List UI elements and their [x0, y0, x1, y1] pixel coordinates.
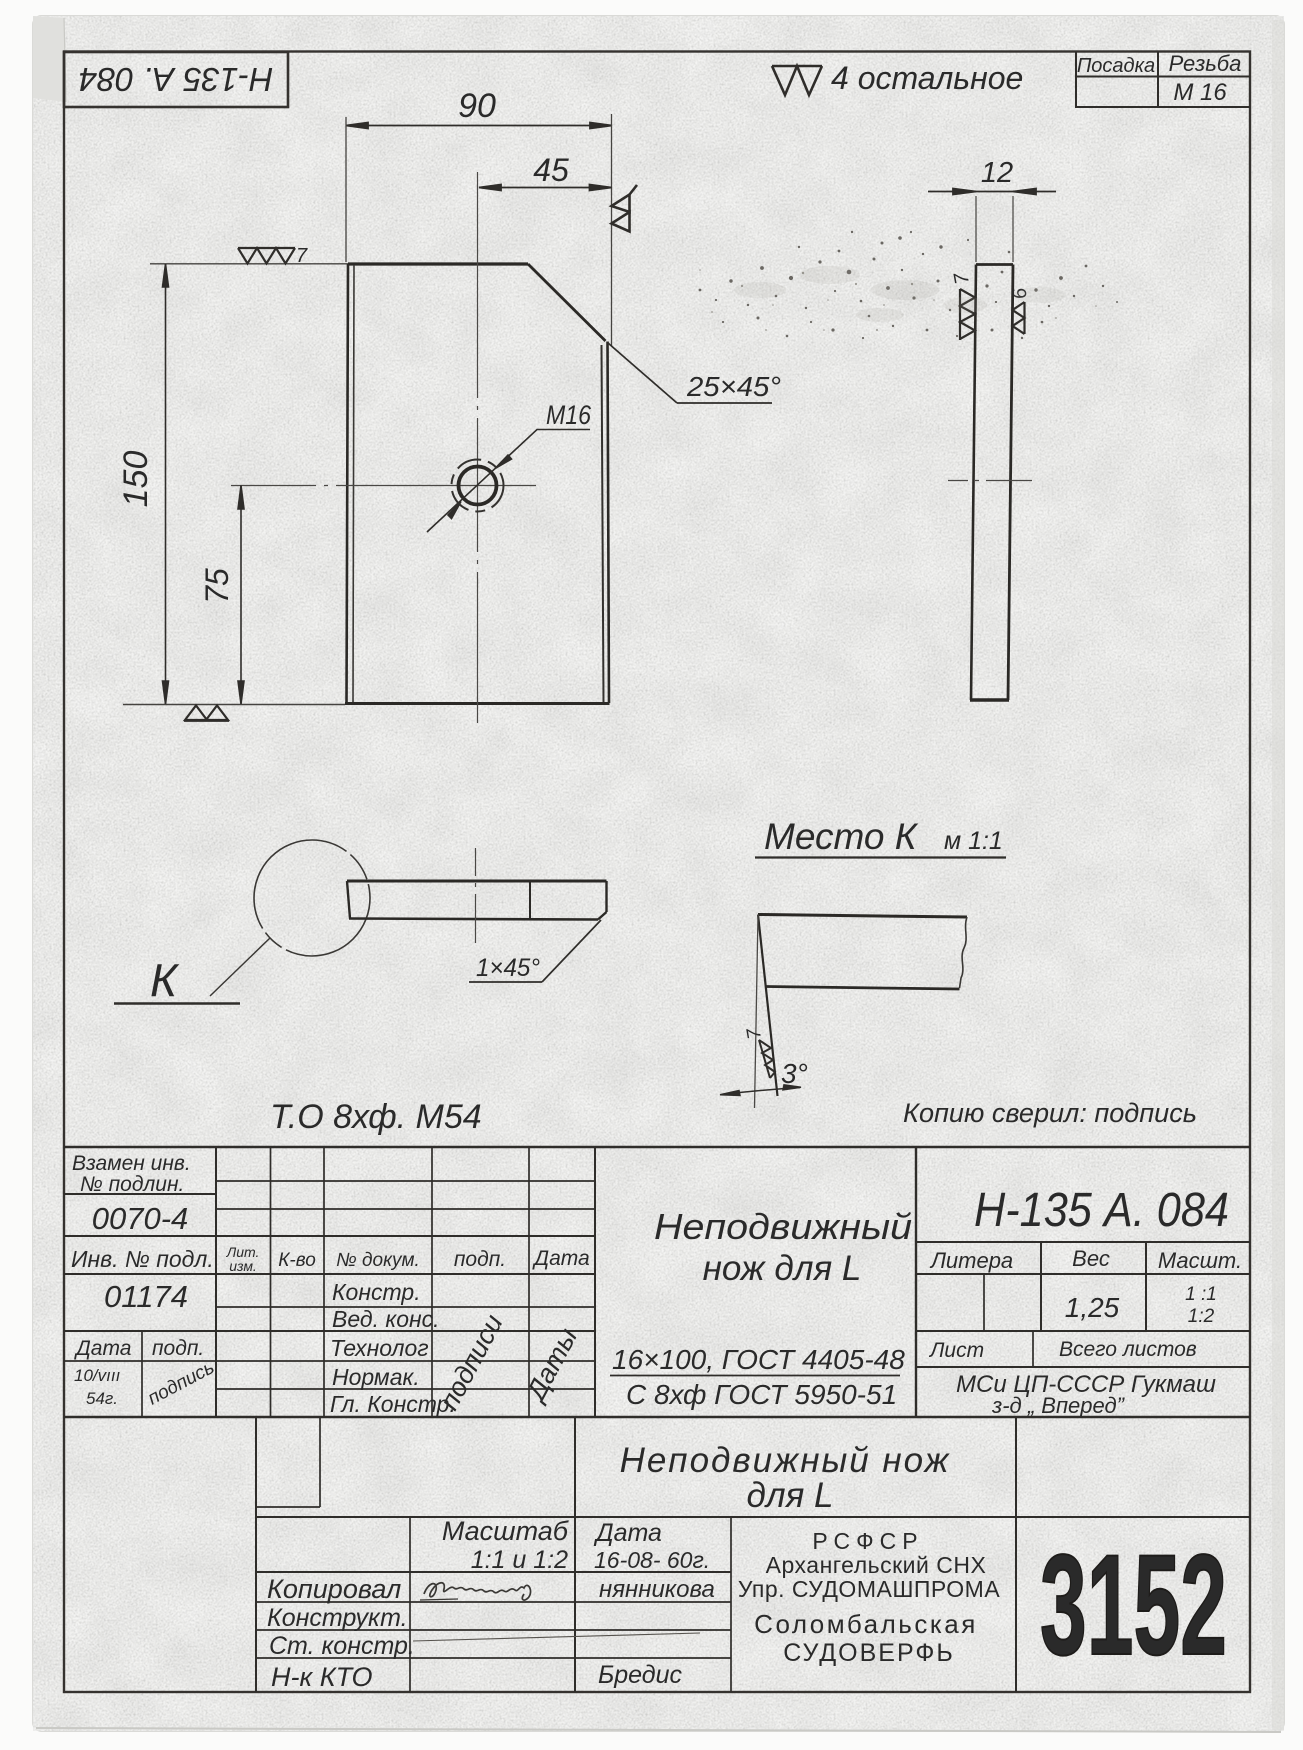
svg-text:Упр. СУДОМАШПРОМА: Упр. СУДОМАШПРОМА: [738, 1576, 1000, 1602]
svg-text:подп.: подп.: [454, 1248, 506, 1271]
svg-text:К: К: [150, 954, 180, 1006]
svg-text:90: 90: [458, 87, 496, 125]
svg-text:1:1 и 1:2: 1:1 и 1:2: [471, 1546, 568, 1574]
svg-text:з-д „ Вперед”: з-д „ Вперед”: [991, 1393, 1126, 1418]
svg-text:подп.: подп.: [152, 1337, 204, 1360]
svg-text:Нормак.: Нормак.: [332, 1364, 420, 1390]
svg-text:Взамен инв.: Взамен инв.: [72, 1152, 191, 1175]
svg-text:нож для L: нож для L: [703, 1249, 862, 1288]
svg-text:16-08- 60г.: 16-08- 60г.: [594, 1547, 710, 1573]
svg-text:4 остальное: 4 остальное: [831, 60, 1023, 96]
svg-text:150: 150: [117, 451, 155, 508]
svg-text:Дата: Дата: [74, 1337, 131, 1360]
svg-text:№ подлин.: № подлин.: [80, 1173, 184, 1196]
svg-text:РСФСР: РСФСР: [812, 1528, 923, 1554]
svg-text:Неподвижный нож: Неподвижный нож: [620, 1441, 951, 1480]
svg-text:Инв. № подл.: Инв. № подл.: [71, 1246, 214, 1272]
svg-text:Дата: Дата: [593, 1519, 662, 1547]
svg-text:№ докум.: № докум.: [336, 1250, 420, 1271]
svg-text:Н-к КТО: Н-к КТО: [271, 1662, 373, 1692]
svg-text:Конструкт.: Конструкт.: [267, 1604, 408, 1632]
svg-text:м 1:1: м 1:1: [944, 827, 1003, 855]
svg-text:3°: 3°: [781, 1058, 808, 1089]
svg-text:Литера: Литера: [929, 1248, 1013, 1273]
svg-text:нянникова: нянникова: [599, 1576, 715, 1603]
svg-text:12: 12: [981, 157, 1013, 189]
svg-text:Ст. констр.: Ст. констр.: [269, 1632, 415, 1660]
svg-text:25×45°: 25×45°: [686, 371, 781, 402]
svg-text:Вес: Вес: [1072, 1246, 1110, 1271]
svg-text:Резьба: Резьба: [1169, 51, 1242, 76]
svg-text:1×45°: 1×45°: [476, 954, 540, 982]
svg-text:75: 75: [199, 568, 235, 604]
svg-text:К-во: К-во: [278, 1250, 316, 1271]
svg-text:Масштаб: Масштаб: [442, 1516, 569, 1546]
svg-text:С 8хф ГОСТ 5950-51: С 8хф ГОСТ 5950-51: [626, 1379, 897, 1410]
svg-text:01174: 01174: [104, 1279, 188, 1314]
svg-text:54г.: 54г.: [86, 1389, 118, 1408]
svg-text:Дата: Дата: [532, 1247, 589, 1270]
svg-text:Бредис: Бредис: [598, 1661, 683, 1689]
svg-text:Всего листов: Всего листов: [1059, 1338, 1197, 1361]
svg-text:Архангельский СНХ: Архангельский СНХ: [766, 1552, 987, 1578]
svg-text:Масшт.: Масшт.: [1158, 1248, 1242, 1273]
svg-text:Соломбальская: Соломбальская: [754, 1609, 978, 1639]
svg-text:М16: М16: [546, 400, 592, 430]
svg-text:СУДОВЕРФЬ: СУДОВЕРФЬ: [783, 1639, 955, 1667]
svg-text:0070-4: 0070-4: [92, 1201, 189, 1236]
svg-text:Технолог: Технолог: [330, 1335, 429, 1361]
svg-text:Неподвижный: Неподвижный: [654, 1206, 912, 1247]
svg-text:Н-135 А. 084: Н-135 А. 084: [974, 1184, 1229, 1237]
svg-text:Место К: Место К: [764, 816, 919, 857]
svg-text:10/vııı: 10/vııı: [74, 1366, 120, 1385]
svg-text:1:2: 1:2: [1188, 1306, 1215, 1327]
svg-text:16×100, ГОСТ 4405-48: 16×100, ГОСТ 4405-48: [612, 1344, 905, 1375]
svg-text:Копию сверил: подпись: Копию сверил: подпись: [903, 1098, 1197, 1128]
svg-text:Т.О 8хф. М54: Т.О 8хф. М54: [270, 1098, 482, 1136]
svg-text:Посадка: Посадка: [1077, 55, 1155, 77]
svg-text:для L: для L: [747, 1476, 834, 1515]
svg-text:7: 7: [296, 245, 308, 267]
svg-text:1 :1: 1 :1: [1185, 1284, 1217, 1305]
svg-text:3152: 3152: [1040, 1526, 1227, 1685]
svg-text:М 16: М 16: [1173, 79, 1227, 106]
svg-text:Н-135 А. 084: Н-135 А. 084: [79, 61, 273, 98]
svg-text:Копировал: Копировал: [267, 1574, 401, 1604]
svg-text:Вед. конс.: Вед. конс.: [332, 1306, 440, 1332]
svg-text:1,25: 1,25: [1065, 1292, 1120, 1323]
svg-text:изм.: изм.: [229, 1258, 257, 1274]
svg-text:Констр.: Констр.: [332, 1279, 421, 1305]
svg-text:45: 45: [533, 152, 569, 188]
svg-text:Лист: Лист: [928, 1339, 984, 1362]
